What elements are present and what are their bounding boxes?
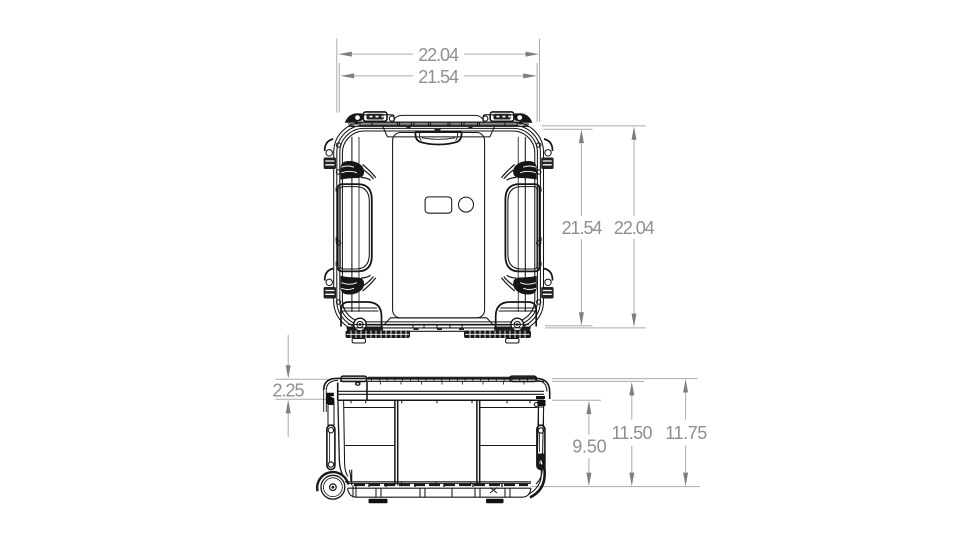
svg-text:21.54: 21.54 bbox=[418, 67, 459, 87]
svg-text:21.54: 21.54 bbox=[562, 218, 603, 238]
svg-text:22.04: 22.04 bbox=[614, 218, 655, 238]
svg-text:22.04: 22.04 bbox=[418, 45, 459, 65]
svg-text:9.50: 9.50 bbox=[572, 437, 607, 457]
svg-text:2.25: 2.25 bbox=[273, 380, 305, 400]
svg-text:11.75: 11.75 bbox=[665, 423, 707, 443]
svg-text:11.50: 11.50 bbox=[612, 423, 653, 443]
